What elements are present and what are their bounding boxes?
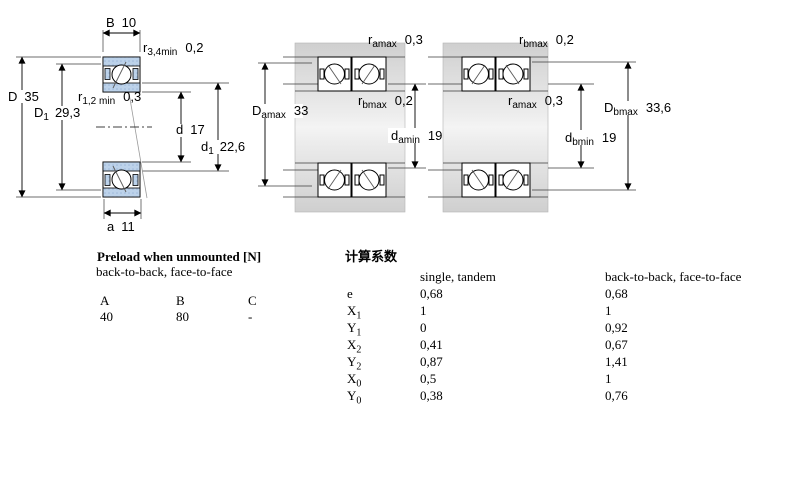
- factor-paired-value: 1: [605, 304, 612, 318]
- dim-D-label: D35: [8, 89, 39, 104]
- preload-col-B: B: [176, 294, 185, 308]
- middle-drawing-paired-bearings: ramax0,3 rbmax0,2 Damax33 damin19: [249, 32, 454, 212]
- dim-ramax-label: ramax0,3: [368, 32, 423, 50]
- bearing-datasheet-page: B10 r3,4min0,2 D35 r1,2 min0,3 D129,3 d1…: [0, 0, 800, 500]
- technical-drawings: B10 r3,4min0,2 D35 r1,2 min0,3 D129,3 d1…: [0, 0, 800, 245]
- factor-paired-value: 0,68: [605, 287, 628, 301]
- factors-col-single: single, tandem: [420, 270, 496, 284]
- factor-single-value: 0,5: [420, 372, 436, 386]
- upper-cage-right: [133, 69, 138, 80]
- dim-d1-label: d122,6: [201, 139, 245, 157]
- factors-title: 计算系数: [345, 250, 397, 264]
- preload-subtitle: back-to-back, face-to-face: [96, 265, 232, 279]
- preload-value-C: -: [248, 310, 252, 324]
- factor-paired-value: 1: [605, 372, 612, 386]
- middle-bottom-bearing-pair: [318, 163, 386, 197]
- left-drawing-single-bearing: B10 r3,4min0,2 D35 r1,2 min0,3 D129,3 d1…: [6, 15, 245, 234]
- factors-col-paired: back-to-back, face-to-face: [605, 270, 741, 284]
- lower-cage-right: [133, 175, 138, 186]
- left-bearing-geometry: [96, 57, 152, 198]
- factor-single-value: 0,38: [420, 389, 443, 403]
- preload-value-B: 80: [176, 310, 189, 324]
- preload-col-C: C: [248, 294, 257, 308]
- upper-ball: [112, 65, 131, 84]
- factor-single-value: 1: [420, 304, 427, 318]
- dim-rbmax-label: rbmax0,2: [519, 32, 574, 50]
- factor-single-value: 0,41: [420, 338, 443, 352]
- preload-title: Preload when unmounted [N]: [97, 250, 261, 264]
- factor-paired-value: 1,41: [605, 355, 628, 369]
- dim-D1-label: D129,3: [34, 105, 80, 123]
- factor-single-value: 0: [420, 321, 427, 335]
- factor-paired-value: 0,67: [605, 338, 628, 352]
- dim-B-label: B10: [106, 15, 136, 30]
- lower-ball: [112, 170, 131, 189]
- calculation-factors-table: 计算系数 single, tandem back-to-back, face-t…: [345, 250, 765, 410]
- right-bottom-bearing-pair: [462, 163, 530, 197]
- factor-row-label: Y0: [347, 389, 361, 409]
- dim-a-label: a11: [107, 219, 135, 234]
- right-top-bearing-pair: [462, 57, 530, 91]
- preload-value-A: 40: [100, 310, 113, 324]
- dim-d-label: d17: [176, 122, 205, 137]
- factor-single-value: 0,68: [420, 287, 443, 301]
- upper-cage-left: [105, 69, 110, 80]
- middle-top-bearing-pair: [318, 57, 386, 91]
- preload-table: Preload when unmounted [N] back-to-back,…: [97, 250, 327, 330]
- factor-paired-value: 0,92: [605, 321, 628, 335]
- factor-paired-value: 0,76: [605, 389, 628, 403]
- factor-single-value: 0,87: [420, 355, 443, 369]
- right-drawing-paired-bearings: rbmax0,2 ramax0,3 Dbmax33,6 dbmin19: [428, 32, 671, 212]
- preload-col-A: A: [100, 294, 109, 308]
- lower-cage-left: [105, 175, 110, 186]
- dim-r34-label: r3,4min0,2: [143, 40, 203, 58]
